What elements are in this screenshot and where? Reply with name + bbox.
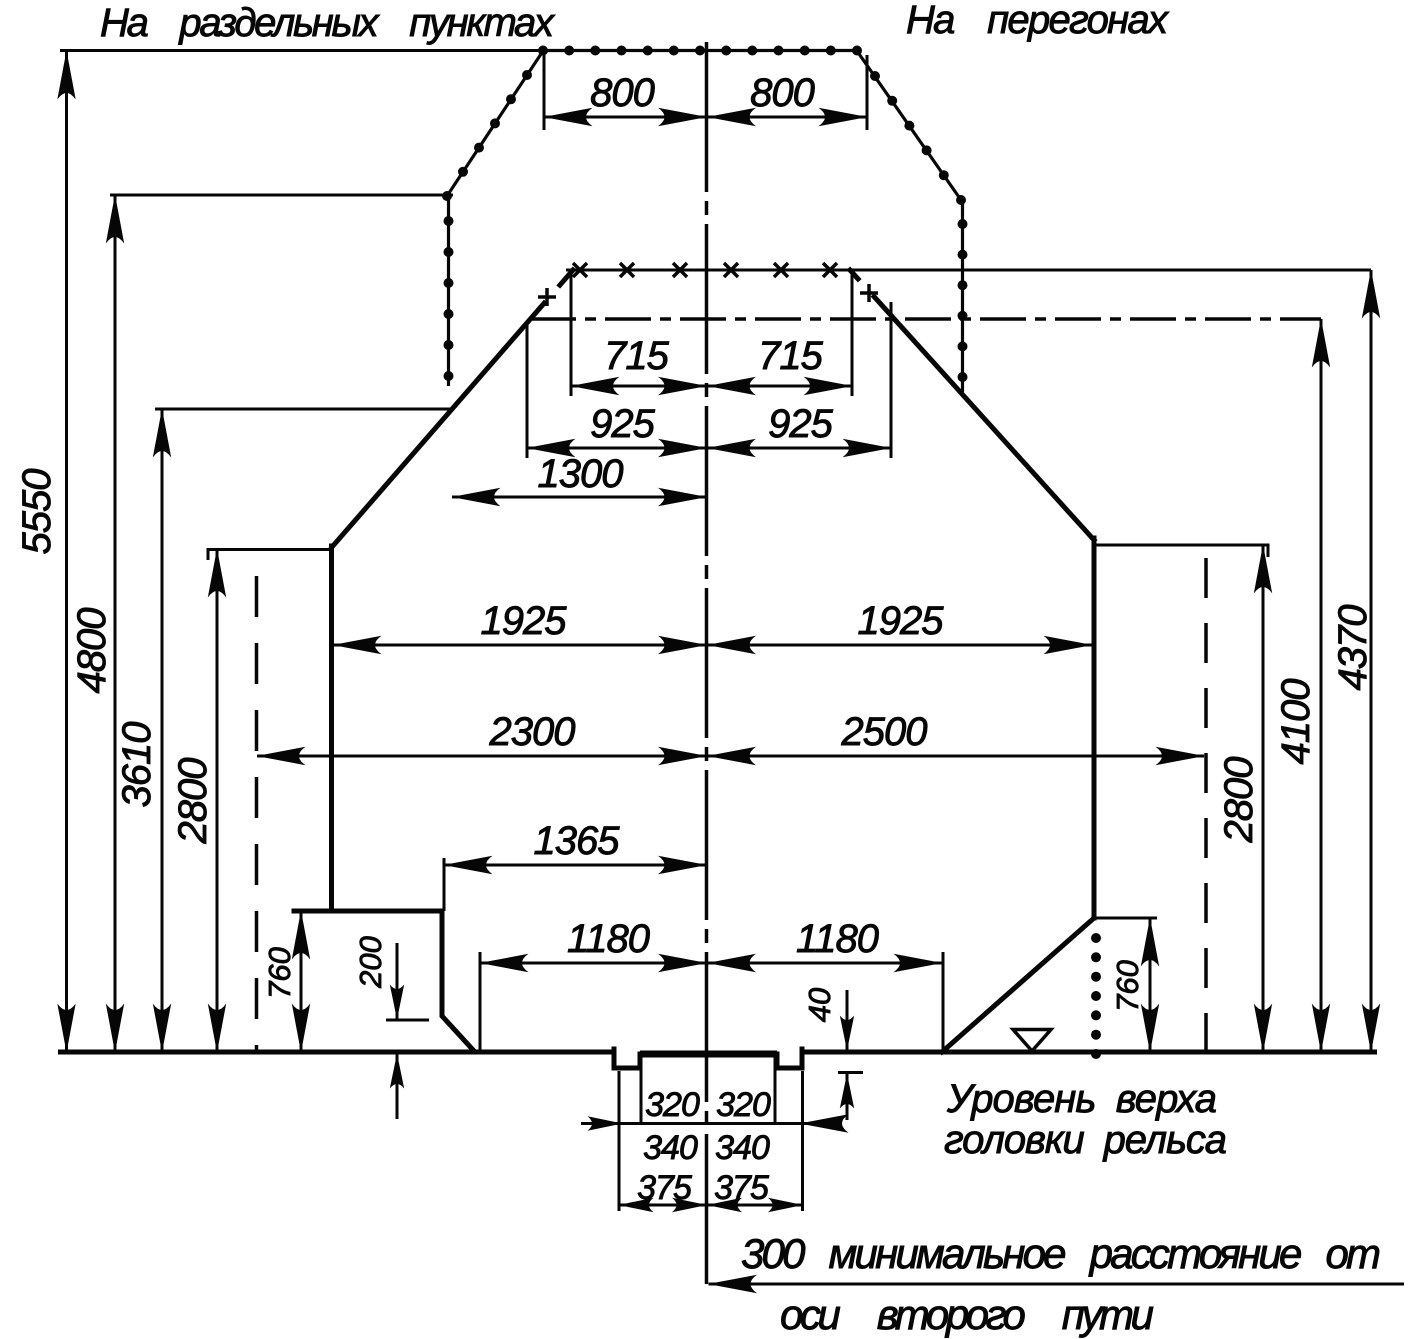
svg-text:На раздельных пунктах: На раздельных пунктах (100, 1, 556, 45)
svg-text:925: 925 (768, 402, 833, 446)
svg-text:925: 925 (590, 402, 655, 446)
svg-text:340: 340 (643, 1129, 698, 1167)
svg-text:2800: 2800 (1217, 757, 1261, 844)
svg-text:2500: 2500 (841, 710, 928, 754)
svg-text:800: 800 (750, 71, 814, 115)
svg-text:1180: 1180 (567, 917, 650, 961)
svg-text:760: 760 (262, 947, 297, 999)
svg-text:320: 320 (716, 1086, 771, 1124)
svg-text:4100: 4100 (1274, 679, 1318, 765)
svg-text:760: 760 (1110, 960, 1145, 1012)
svg-text:2300: 2300 (489, 710, 576, 754)
svg-text:4800: 4800 (70, 608, 114, 694)
svg-text:1300: 1300 (538, 452, 624, 496)
svg-text:200: 200 (353, 936, 388, 989)
svg-text:3610: 3610 (115, 722, 159, 808)
svg-text:1925: 1925 (858, 599, 945, 643)
svg-text:715: 715 (758, 334, 823, 378)
svg-text:1925: 1925 (481, 599, 568, 643)
svg-text:На перегонах: На перегонах (906, 0, 1170, 42)
svg-text:340: 340 (715, 1129, 770, 1167)
svg-text:2800: 2800 (171, 758, 215, 845)
svg-text:800: 800 (590, 71, 654, 115)
svg-text:715: 715 (604, 334, 669, 378)
svg-text:Уровень верха: Уровень верха (946, 1077, 1217, 1121)
svg-text:оси второго пути: оси второго пути (780, 1291, 1154, 1338)
svg-text:5550: 5550 (15, 469, 59, 555)
svg-text:1365: 1365 (534, 819, 621, 863)
svg-text:375: 375 (714, 1169, 769, 1207)
svg-text:300 минимальное расстояние от: 300 минимальное расстояние от (741, 1230, 1381, 1277)
svg-text:320: 320 (645, 1086, 700, 1124)
svg-text:375: 375 (637, 1169, 692, 1207)
svg-text:головки рельса: головки рельса (944, 1118, 1227, 1162)
svg-text:4370: 4370 (1331, 605, 1375, 691)
svg-text:1180: 1180 (796, 917, 879, 961)
svg-text:40: 40 (802, 988, 837, 1022)
